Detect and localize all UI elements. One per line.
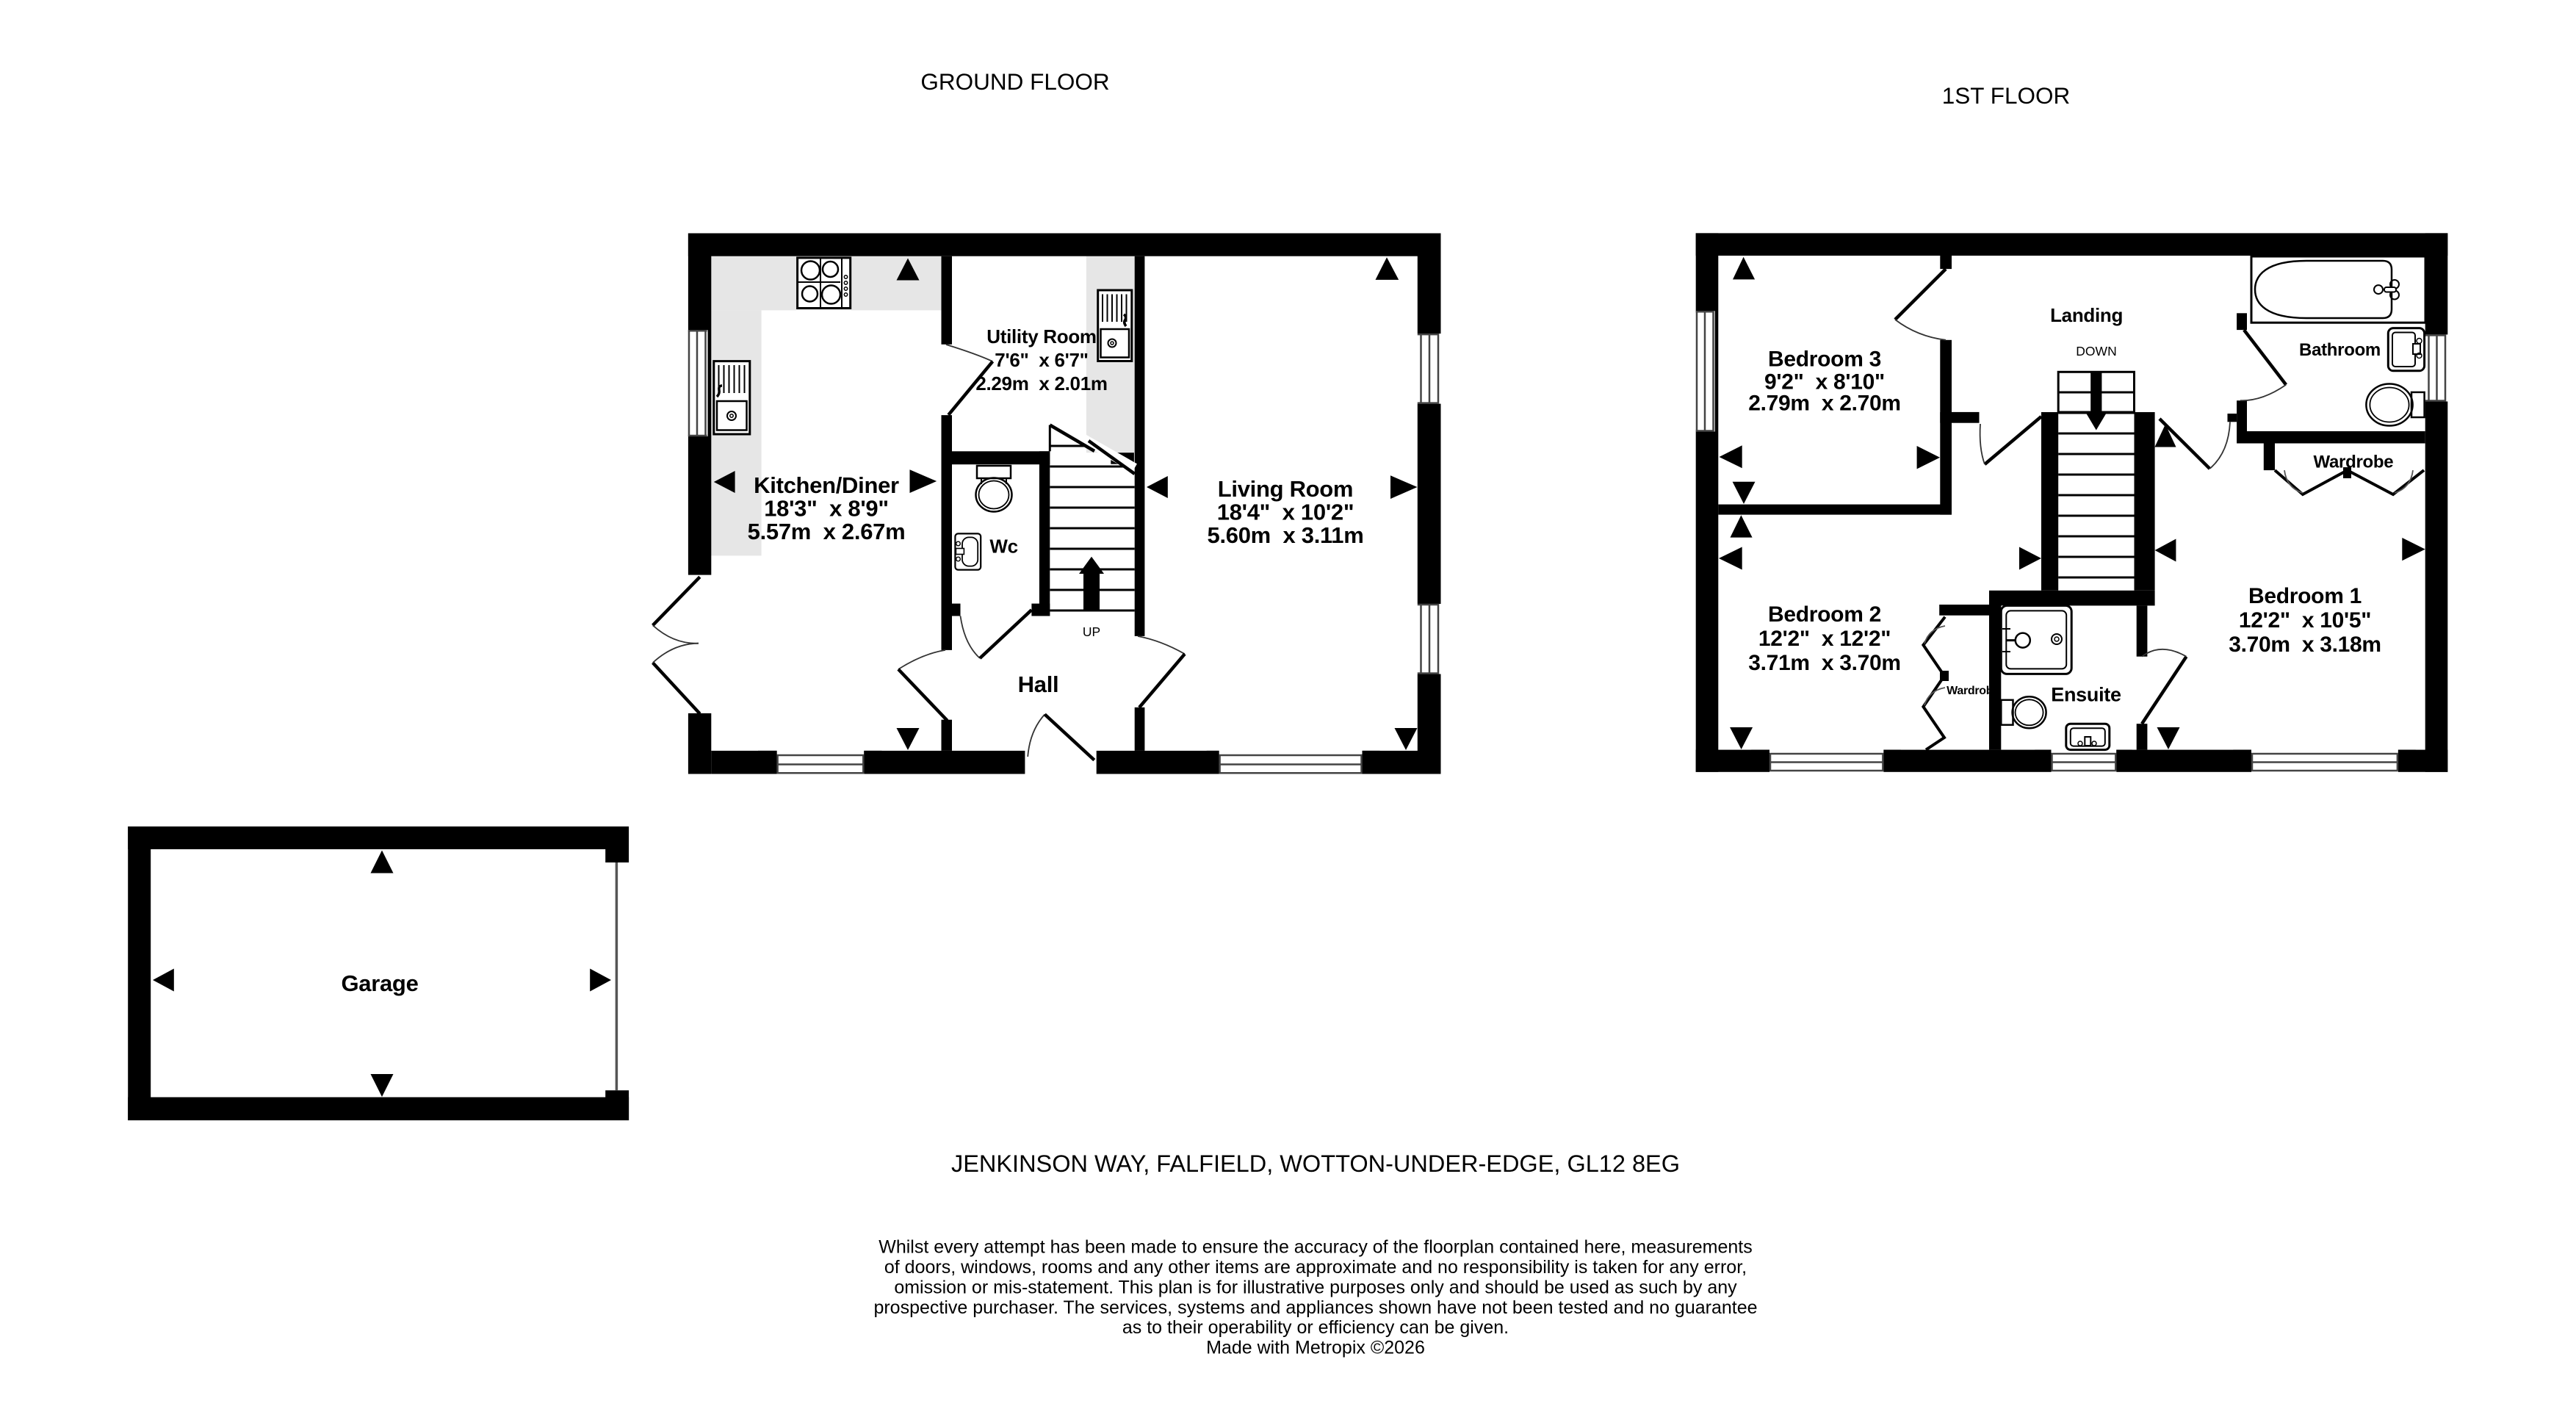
svg-text:Wardrobe: Wardrobe: [2314, 452, 2394, 472]
svg-text:Wardrobe: Wardrobe: [1947, 685, 1999, 697]
svg-text:Kitchen/Diner: Kitchen/Diner: [754, 472, 899, 498]
svg-text:UP: UP: [1083, 624, 1100, 639]
svg-text:Utility Room: Utility Room: [986, 325, 1097, 347]
svg-text:7'6" x 6'7": 7'6" x 6'7": [995, 349, 1088, 371]
svg-text:12'2" x 10'5": 12'2" x 10'5": [2239, 608, 2371, 633]
svg-text:DOWN: DOWN: [2076, 344, 2116, 359]
svg-text:1ST FLOOR: 1ST FLOOR: [1942, 82, 2070, 109]
svg-text:5.57m x 2.67m: 5.57m x 2.67m: [748, 519, 906, 544]
svg-text:2.29m x 2.01m: 2.29m x 2.01m: [975, 372, 1107, 395]
svg-text:GROUND FLOOR: GROUND FLOOR: [920, 68, 1109, 95]
svg-text:12'2" x 12'2": 12'2" x 12'2": [1758, 627, 1891, 651]
svg-text:18'3" x 8'9": 18'3" x 8'9": [764, 496, 889, 522]
svg-text:Made with Metropix ©2026: Made with Metropix ©2026: [1206, 1338, 1425, 1358]
svg-text:Hall: Hall: [1018, 671, 1059, 697]
svg-text:Living Room: Living Room: [1218, 476, 1353, 502]
svg-text:3.70m x 3.18m: 3.70m x 3.18m: [2229, 633, 2381, 657]
svg-text:prospective purchaser. The ser: prospective purchaser. The services, sys…: [873, 1297, 1757, 1318]
svg-text:omission or mis-statement. Thi: omission or mis-statement. This plan is …: [894, 1277, 1737, 1297]
svg-text:18'4" x 10'2": 18'4" x 10'2": [1217, 500, 1354, 525]
svg-text:Bathroom: Bathroom: [2299, 340, 2381, 360]
svg-text:2.79m x 2.70m: 2.79m x 2.70m: [1748, 392, 1901, 416]
svg-text:as to their operability or eff: as to their operability or efficiency ca…: [1122, 1317, 1509, 1338]
svg-text:Bedroom 2: Bedroom 2: [1768, 602, 1881, 627]
svg-text:Garage: Garage: [341, 970, 418, 996]
svg-text:JENKINSON WAY, FALFIELD, WOTTO: JENKINSON WAY, FALFIELD, WOTTON-UNDER-ED…: [951, 1150, 1680, 1177]
svg-text:5.60m x 3.11m: 5.60m x 3.11m: [1208, 522, 1364, 548]
svg-text:Wc: Wc: [989, 536, 1017, 558]
svg-text:Bedroom 1: Bedroom 1: [2248, 584, 2362, 608]
svg-text:Landing: Landing: [2050, 304, 2123, 326]
svg-text:of doors, windows, rooms and a: of doors, windows, rooms and any other i…: [884, 1257, 1747, 1278]
svg-text:Bedroom 3: Bedroom 3: [1768, 347, 1881, 372]
svg-text:Whilst every attempt has been: Whilst every attempt has been made to en…: [878, 1237, 1753, 1258]
svg-text:Ensuite: Ensuite: [2051, 684, 2121, 706]
svg-text:3.71m x 3.70m: 3.71m x 3.70m: [1748, 651, 1901, 675]
